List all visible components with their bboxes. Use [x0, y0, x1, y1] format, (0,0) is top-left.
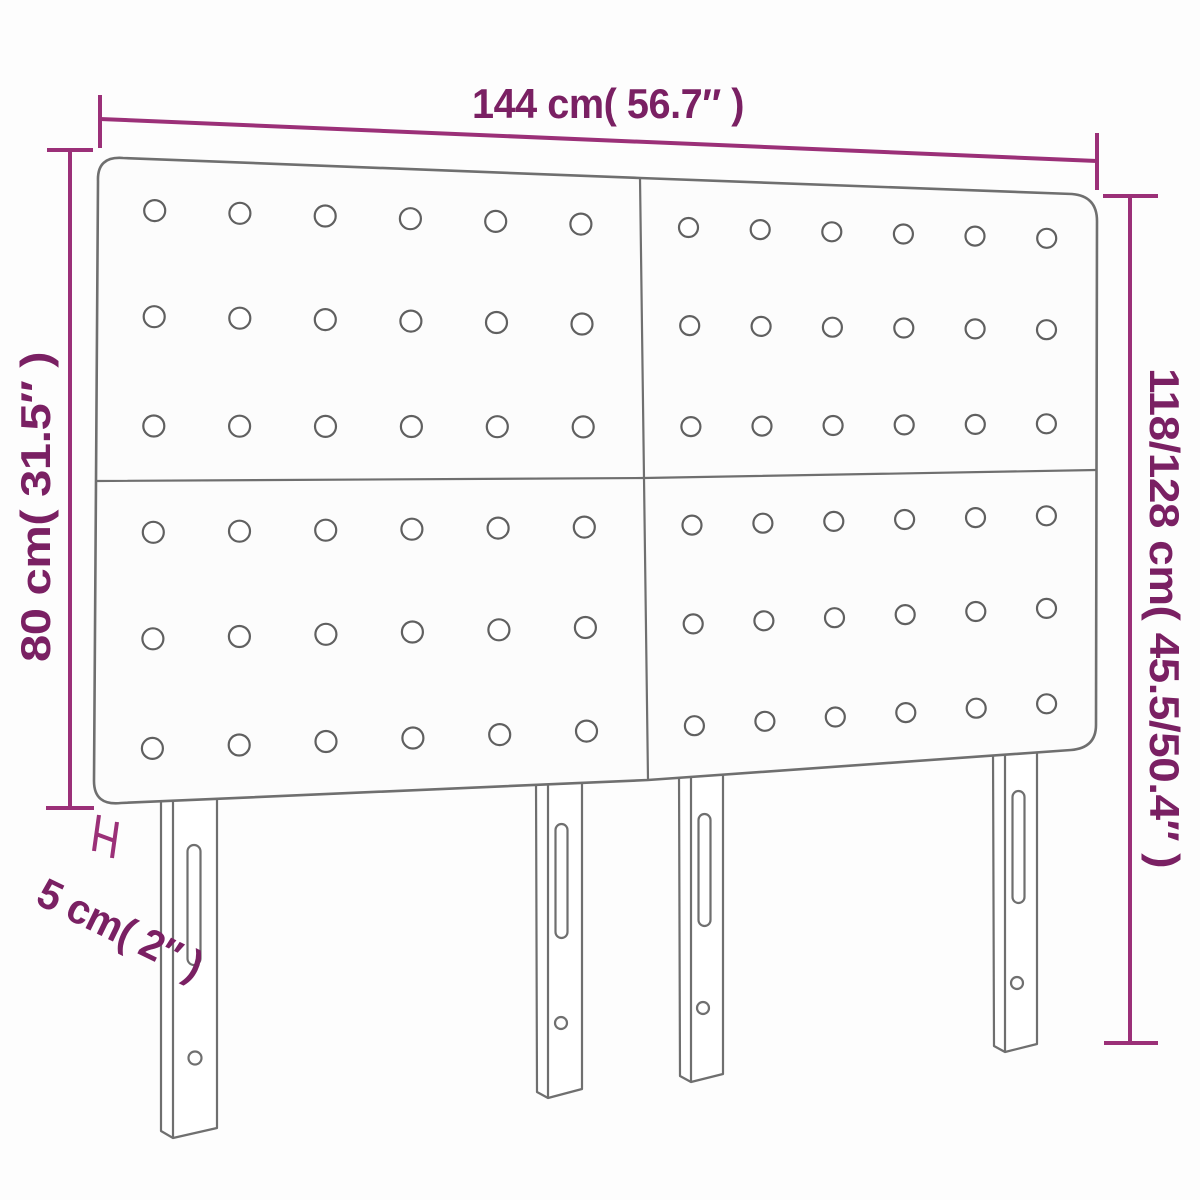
- tufting-button: [485, 211, 506, 232]
- height-right-dimension-label: 118/128 cm( 45.5/50.4″ ): [1141, 368, 1188, 868]
- tufting-button: [488, 518, 509, 539]
- leg-2-screw-hole: [555, 1017, 567, 1029]
- headboard: [94, 158, 1097, 803]
- tufting-button: [316, 731, 337, 752]
- tufting-button: [574, 517, 595, 538]
- tufting-button: [1037, 320, 1056, 339]
- tufting-button: [229, 626, 250, 647]
- tufting-button: [229, 308, 250, 329]
- tufting-button: [573, 416, 594, 437]
- tufting-button: [315, 309, 336, 330]
- leg-2-slot: [556, 824, 568, 938]
- tufting-button: [488, 619, 509, 640]
- tufting-button: [142, 738, 163, 759]
- tufting-button: [823, 318, 842, 337]
- tufting-button: [825, 608, 844, 627]
- tufting-button: [685, 716, 704, 735]
- tufting-button: [754, 611, 773, 630]
- tufting-button: [1037, 694, 1056, 713]
- tufting-button: [576, 721, 597, 742]
- tufting-button: [1037, 414, 1056, 433]
- tufting-button: [680, 316, 699, 335]
- tufting-button: [143, 416, 164, 437]
- tufting-button: [895, 415, 914, 434]
- diagram-canvas: 144 cm( 56.7″ ) 80 cm( 31.5″ ) 118/128 c…: [0, 0, 1200, 1200]
- tufting-button: [486, 312, 507, 333]
- tufting-button: [1037, 229, 1056, 248]
- tufting-button: [753, 514, 772, 533]
- tufting-button: [315, 520, 336, 541]
- tufting-button: [822, 222, 841, 241]
- tufting-button: [315, 416, 336, 437]
- leg-3-screw-hole: [697, 1002, 709, 1014]
- tufting-button: [229, 203, 250, 224]
- tufting-button: [142, 628, 163, 649]
- leg-3-slot: [699, 814, 711, 926]
- tufting-button: [144, 306, 165, 327]
- tufting-button: [401, 519, 422, 540]
- tufting-button: [315, 624, 336, 645]
- tufting-button: [229, 416, 250, 437]
- headboard-dimension-diagram: 144 cm( 56.7″ ) 80 cm( 31.5″ ) 118/128 c…: [0, 0, 1200, 1200]
- legs: [161, 748, 1037, 1138]
- leg-2: [536, 778, 582, 1098]
- tufting-button: [229, 735, 250, 756]
- leg-4: [993, 748, 1037, 1052]
- tufting-button: [402, 728, 423, 749]
- tufting-button: [575, 617, 596, 638]
- tufting-button: [401, 416, 422, 437]
- tufting-button: [143, 522, 164, 543]
- leg-4-screw-hole: [1011, 977, 1023, 989]
- tufting-button: [752, 317, 771, 336]
- tufting-button: [966, 602, 985, 621]
- tufting-button: [895, 510, 914, 529]
- tufting-button: [402, 622, 423, 643]
- tufting-button: [572, 314, 593, 335]
- tufting-button: [315, 206, 336, 227]
- tufting-button: [679, 218, 698, 237]
- tufting-button: [966, 227, 985, 246]
- tufting-button: [896, 605, 915, 624]
- tufting-button: [826, 708, 845, 727]
- width-dimension-label: 144 cm( 56.7″ ): [472, 80, 744, 127]
- tufting-button: [489, 724, 510, 745]
- tufting-button: [400, 208, 421, 229]
- tufting-button: [755, 712, 774, 731]
- tufting-button: [966, 415, 985, 434]
- tufting-button: [894, 319, 913, 338]
- tufting-button: [400, 311, 421, 332]
- tufting-button: [1037, 506, 1056, 525]
- tufting-button: [487, 416, 508, 437]
- depth-connector: [96, 834, 115, 841]
- leg-1-screw-hole: [189, 1052, 202, 1065]
- tufting-button: [684, 614, 703, 633]
- tufting-button: [683, 516, 702, 535]
- tufting-button: [1037, 599, 1056, 618]
- leg-4-slot: [1013, 791, 1025, 903]
- tufting-button: [681, 417, 700, 436]
- tufting-button: [824, 512, 843, 531]
- tufting-button: [144, 200, 165, 221]
- tufting-button: [229, 521, 250, 542]
- leg-3: [679, 772, 723, 1082]
- tufting-button: [570, 214, 591, 235]
- height-left-dimension-label: 80 cm( 31.5″ ): [12, 352, 59, 662]
- depth-dimension-bracket: [94, 815, 117, 858]
- tufting-button: [894, 225, 913, 244]
- tufting-button: [966, 319, 985, 338]
- tufting-button: [751, 220, 770, 239]
- tufting-button: [966, 508, 985, 527]
- tufting-button: [753, 417, 772, 436]
- tufting-button: [896, 703, 915, 722]
- tufting-button: [967, 699, 986, 718]
- tufting-button: [824, 416, 843, 435]
